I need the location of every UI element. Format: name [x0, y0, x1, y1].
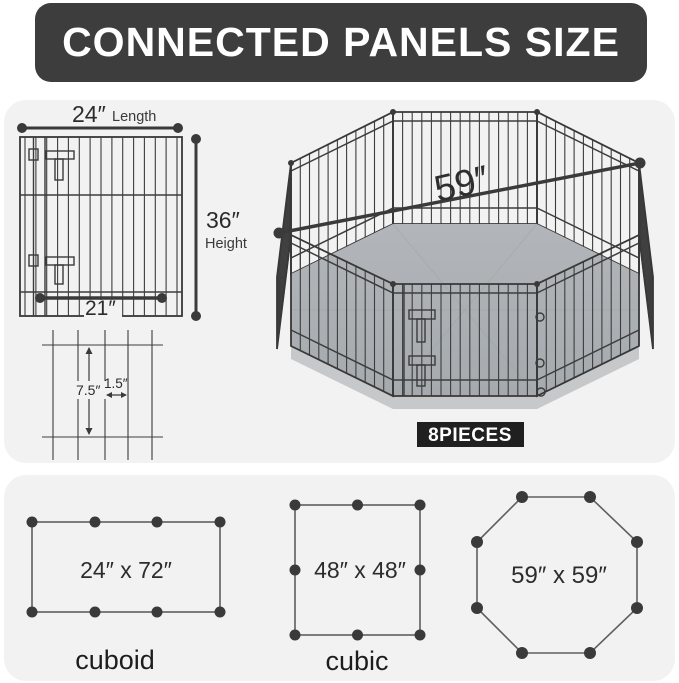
panel-diagram: 24″ Length 36″	[17, 101, 247, 321]
playpen-panel-right	[639, 163, 653, 349]
octagon-size: 59″ x 59″	[511, 562, 607, 589]
config-octagon: 59″ x 59″	[471, 491, 643, 659]
length-value: 24″	[72, 101, 106, 127]
height-dimension: 36″ Height	[191, 134, 247, 321]
playpen-panel-left	[277, 163, 291, 349]
diagram-canvas: 24″ Length 36″	[0, 0, 679, 683]
dimension-dot	[35, 293, 45, 303]
wire-spacing-detail: 7.5″ 1.5″	[42, 330, 163, 460]
length-label: Length	[112, 109, 156, 125]
playpen-illustration: 59″ 8PIECES	[274, 109, 654, 447]
cuboid-label: cuboid	[75, 645, 155, 675]
pieces-badge: 8PIECES	[417, 422, 524, 447]
dimension-dot	[173, 123, 183, 133]
dimension-dot	[157, 293, 167, 303]
vertical-spacing-value: 7.5″	[76, 382, 100, 398]
height-label: Height	[205, 236, 247, 252]
cubic-size: 48″ x 48″	[314, 557, 406, 583]
horizontal-spacing-arrow: 1.5″	[104, 376, 128, 398]
diagonal-value: 59″	[430, 158, 492, 210]
config-cuboid: 24″ x 72″ cuboid	[27, 517, 226, 676]
dimension-dot	[191, 134, 201, 144]
dimension-dot	[635, 158, 646, 169]
cubic-label: cubic	[325, 646, 388, 676]
length-dimension: 24″ Length	[17, 101, 183, 133]
cuboid-size: 24″ x 72″	[80, 557, 172, 583]
panel-front-view	[20, 137, 182, 316]
horizontal-spacing-value: 1.5″	[104, 376, 128, 391]
pieces-badge-label: 8PIECES	[428, 425, 512, 446]
dimension-dot	[191, 311, 201, 321]
height-value: 36″	[206, 207, 240, 233]
dimension-dot	[17, 123, 27, 133]
door-frame-wires	[34, 137, 46, 316]
config-cubic: 48″ x 48″ cubic	[290, 500, 426, 677]
dimension-dot	[274, 228, 285, 239]
door-width-value: 21″	[85, 297, 116, 320]
vertical-spacing-arrow: 7.5″	[74, 347, 106, 435]
